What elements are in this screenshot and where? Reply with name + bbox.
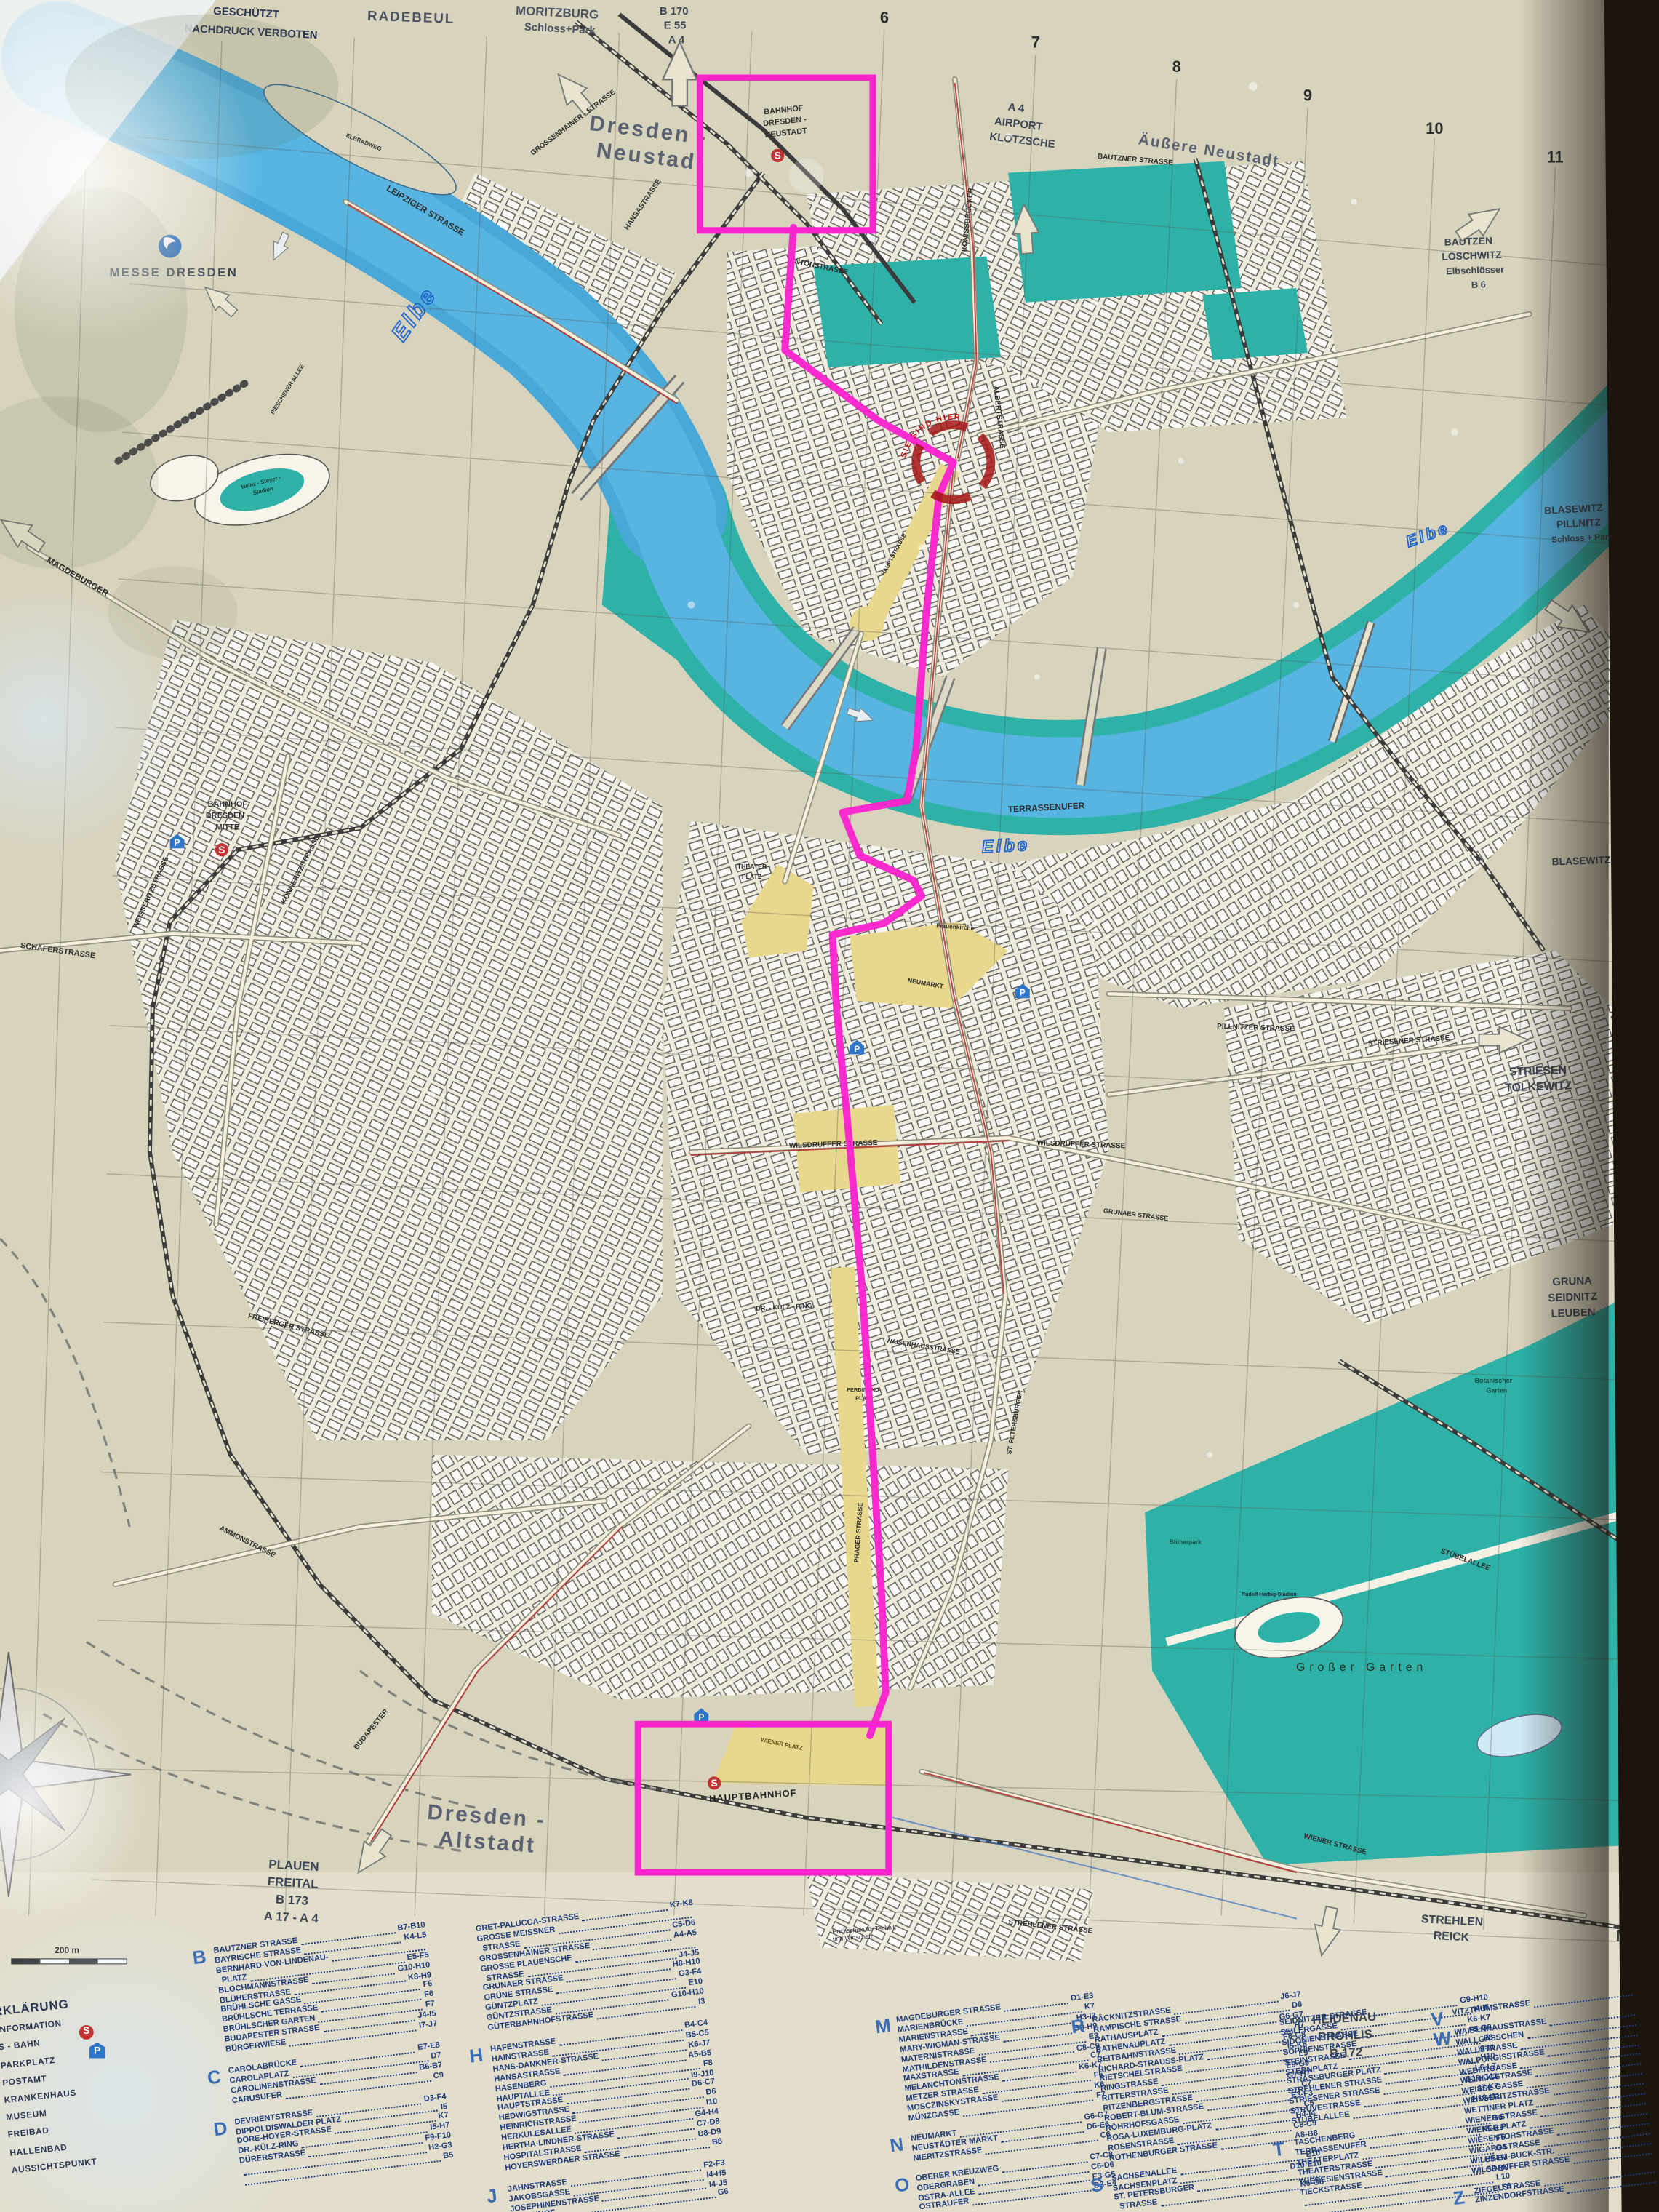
legend-sbahn-icon: S xyxy=(79,2025,94,2040)
frame-shadow-fade xyxy=(1519,0,1609,2212)
label-plauen1: PLAUEN xyxy=(268,1857,319,1874)
index-col-ghj: GRET-PALUCCA-STRASSEK7-K8GROSSE MEISSNER… xyxy=(475,1899,729,2212)
label-bautzen1: BAUTZEN xyxy=(1444,234,1492,247)
label-plauen2: FREITAL xyxy=(267,1874,319,1891)
grid-col-10: 10 xyxy=(1426,119,1443,137)
legend-items: INFORMATIONS - BAHNPARKPLATZPOSTAMTKRANK… xyxy=(0,2019,97,2176)
elbe-label-2: Elbe xyxy=(981,835,1030,857)
sbahn-icon-neustadt: S xyxy=(771,149,784,162)
svg-text:P: P xyxy=(175,838,180,848)
grid-col-8: 8 xyxy=(1172,57,1181,76)
grid-col-6: 6 xyxy=(880,9,889,27)
legend-item: S - BAHN xyxy=(0,2036,84,2053)
map-artwork: 200 m GESCHÜTZT NACHDRUCK VERBOTEN RADEB… xyxy=(0,0,1659,2212)
sbahn-icon-hbf: S xyxy=(708,1776,721,1789)
legend-item: KRANKENHAUS xyxy=(4,2088,90,2106)
svg-text:P: P xyxy=(854,1044,860,1054)
label-b170: B 170 xyxy=(660,6,689,17)
lm-harbig: Rudolf-Harbig-Stadion xyxy=(1242,1592,1297,1597)
label-radebeul: RADEBEUL xyxy=(367,8,455,26)
sbahn-icon-mitte: S xyxy=(215,843,228,856)
label-bautzen4: B 6 xyxy=(1471,279,1487,290)
grid-col-9: 9 xyxy=(1303,87,1312,105)
legend-item: HALLENBAD xyxy=(9,2141,96,2158)
label-plauen4: A 17 - A 4 xyxy=(263,1909,319,1925)
lm-theaterplatz1: THEATER - xyxy=(737,863,771,870)
legend-item: MUSEUM xyxy=(6,2106,92,2123)
station-neustadt-label: BAHNHOF DRESDEN - NEUSTADT xyxy=(761,103,808,140)
label-airport1: A 4 xyxy=(1007,102,1026,116)
index-col-bcd: B BAUTZNER STRASSEB7-B10BAYRISCHE STRASS… xyxy=(213,1921,454,2187)
lm-theaterplatz2: PLATZ xyxy=(742,873,762,880)
legend-item: INFORMATION xyxy=(0,2019,83,2036)
svg-text:P: P xyxy=(1020,988,1026,998)
label-bautzen2: LOSCHWITZ xyxy=(1442,249,1502,263)
lm-botanischer2: Garten xyxy=(1486,1387,1507,1394)
lm-botanischer1: Botanischer xyxy=(1475,1377,1513,1384)
label-e55: E 55 xyxy=(664,20,687,32)
mitte-l2: DRESDEN - xyxy=(206,812,249,820)
legend-item: FREIBAD xyxy=(7,2123,94,2141)
mitte-l1: BAHNHOF xyxy=(208,800,248,809)
svg-text:S: S xyxy=(218,844,225,855)
mitte-l3: MITTE xyxy=(216,823,240,832)
svg-text:S: S xyxy=(775,150,781,161)
lm-ferdinand1: FERDINAND- xyxy=(847,1386,881,1393)
svg-text:S: S xyxy=(711,1777,718,1789)
legend-item: PARKPLATZ xyxy=(0,2053,87,2071)
photographed-city-map: 200 m GESCHÜTZT NACHDRUCK VERBOTEN RADEB… xyxy=(0,0,1659,2212)
label-a4: A 4 xyxy=(668,34,685,46)
lm-grosser-garten: Großer Garten xyxy=(1296,1661,1427,1674)
svg-text:P: P xyxy=(698,1712,704,1722)
label-strehlen2: REICK xyxy=(1433,1930,1470,1944)
label-bautzen3: Elbschlösser xyxy=(1446,264,1505,277)
legend-item: POSTAMT xyxy=(2,2071,89,2088)
lm-bluherpark: Blüherpark xyxy=(1170,1538,1202,1546)
grid-col-7: 7 xyxy=(1031,33,1040,51)
label-plauen3: B 173 xyxy=(276,1893,309,1908)
index-col-vwz: V VITZTHUMSTRASSE W WAISENHAUSSTRASSEWAL… xyxy=(1452,1987,1659,2207)
